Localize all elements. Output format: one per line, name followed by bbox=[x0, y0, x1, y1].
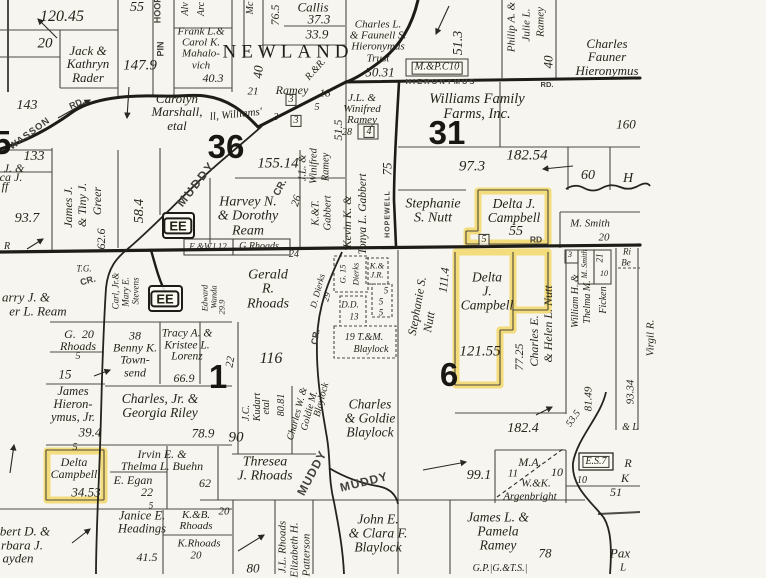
parcel-label: T.G. bbox=[76, 264, 91, 273]
parcel-label: Ramey bbox=[535, 7, 546, 37]
parcel-label: D.D. bbox=[341, 300, 359, 309]
parcel-label: Be bbox=[621, 258, 631, 267]
parcel-label: ayden bbox=[2, 551, 33, 564]
parcel-label: RD. bbox=[68, 97, 86, 112]
owner-buehn: Irvin E. & Thelma L. Buehn bbox=[121, 448, 203, 472]
parcel-label: 182.4 bbox=[507, 422, 539, 436]
parcel-label: 133 bbox=[24, 150, 45, 164]
parcel-label: Mc bbox=[246, 2, 256, 15]
creek-muddy: MUDDY bbox=[339, 470, 390, 494]
parcel-label: G.P.|G.&T.S.| bbox=[473, 564, 528, 574]
parcel-label: M.&P.C10 bbox=[412, 62, 463, 75]
parcel-label: 22 bbox=[141, 486, 153, 498]
owner-john-blaylock: John E. & Clara F. Blaylock bbox=[349, 512, 408, 553]
parcel-label: 53.5 bbox=[565, 409, 583, 429]
parcel-label: 77.25 bbox=[513, 344, 525, 371]
parcel-label: er L. Ream bbox=[9, 304, 66, 317]
owner-james-ramey: James L. & Pamela Ramey bbox=[467, 510, 529, 551]
parcel-label: & Tiny J. bbox=[76, 183, 88, 227]
parcel-label: 93.34 bbox=[625, 380, 636, 405]
parcel-label: 5 bbox=[379, 297, 384, 306]
owner-riley: Charles, Jr. & Georgia Riley bbox=[122, 392, 199, 420]
parcel-label: 29 bbox=[321, 291, 332, 302]
parcel-label: 3 bbox=[274, 113, 279, 123]
parcel-label: 5 bbox=[315, 103, 320, 113]
owner-fauner-hieronymus: Charles Fauner Hieronymus bbox=[575, 37, 638, 77]
parcel-label: Stevens bbox=[131, 278, 140, 305]
parcel-label: 76.5 bbox=[269, 5, 281, 26]
parcel-label: K.& J.R. bbox=[370, 261, 384, 278]
parcel-label: 29.9 bbox=[218, 300, 227, 315]
parcel-label: 143 bbox=[17, 99, 38, 113]
parcel-label: K.&B. Rhoads bbox=[180, 510, 213, 532]
parcel-label: M.A. bbox=[518, 456, 541, 468]
parcel-label: 18 bbox=[320, 88, 331, 99]
parcel-label: 90 bbox=[229, 430, 244, 445]
parcel-label: 21 bbox=[595, 254, 604, 263]
parcel-label: L bbox=[620, 562, 626, 573]
parcel-label: Nutt bbox=[421, 311, 437, 333]
parcel-label: M. Smith bbox=[581, 250, 589, 279]
road-hopewell: HOPEWELL bbox=[384, 190, 391, 238]
section-31: 31 bbox=[429, 116, 466, 150]
parcel-label: 37.3 bbox=[308, 12, 331, 25]
parcel-label: 13 bbox=[350, 312, 359, 321]
acreage-121-55: 121.55 bbox=[459, 344, 500, 359]
parcel-label: 3 bbox=[291, 115, 302, 127]
parcel-label: 26 bbox=[290, 194, 304, 208]
parcel-label: 3 bbox=[286, 94, 297, 106]
parcel-label: 55 bbox=[130, 1, 144, 15]
owner-patterson: Elizabeth H. bbox=[289, 523, 300, 578]
parcel-label: 40 bbox=[251, 65, 265, 79]
parcel-label: 5 bbox=[384, 286, 389, 295]
owner-philip-ramey: Philip A. & bbox=[506, 2, 517, 52]
parcel-label: Dierks bbox=[352, 263, 361, 286]
parcel-label: 5 bbox=[479, 234, 490, 246]
parcel-label: 155.14 bbox=[257, 156, 298, 171]
parcel-label: HOOP bbox=[153, 0, 162, 23]
parcel-label: ll, Williams' bbox=[209, 107, 262, 124]
parcel-label: 5 bbox=[76, 352, 81, 362]
owner-charles-goldie-blaylock: Charles & Goldie Blaylock bbox=[345, 397, 396, 438]
parcel-label: Blaylock bbox=[354, 345, 389, 355]
parcel-label: 78 bbox=[539, 546, 552, 559]
town-newland: NEWLAND bbox=[222, 42, 353, 61]
parcel-label: 97.3 bbox=[459, 159, 485, 174]
parcel-label: Ri bbox=[623, 247, 631, 256]
parcel-label: 93.7 bbox=[15, 212, 40, 226]
owner-greer: James J. bbox=[62, 186, 74, 227]
owner-kevin-gabbert: Kevin K. & bbox=[343, 196, 355, 248]
parcel-label: CR. bbox=[79, 275, 96, 288]
parcel-label: 20 bbox=[599, 232, 610, 243]
parcel-label: 116 bbox=[260, 351, 283, 367]
creek-muddy: MUDDY bbox=[175, 159, 218, 209]
parcel-label: 62.6 bbox=[95, 229, 107, 250]
owner-ream: Harvey N. & Dorothy Ream bbox=[218, 196, 279, 239]
parcel-label: Tonya L. Gabbert bbox=[358, 173, 370, 254]
owner-marshall: Carolyn Marshall, etal bbox=[152, 92, 203, 132]
parcel-label: 120.45 bbox=[40, 9, 84, 25]
parcel-label: 99.1 bbox=[467, 469, 492, 483]
owner-headings: Janice E. Headings bbox=[118, 509, 166, 535]
parcel-label: 62 bbox=[199, 477, 211, 489]
parcel-label: Argenbright bbox=[503, 491, 556, 502]
parcel-label: 60 bbox=[581, 169, 595, 183]
parcel-label: 33.9 bbox=[306, 27, 329, 40]
parcel-label: 20 bbox=[219, 506, 230, 517]
parcel-label: 24 bbox=[289, 250, 299, 260]
parcel-label: 5 bbox=[73, 443, 78, 453]
parcel-label: Julie L. bbox=[521, 9, 532, 42]
parcel-label: ff bbox=[2, 180, 9, 192]
parcel-label: 58.4 bbox=[133, 199, 147, 224]
road-hieronymus: HIERONYMUS bbox=[406, 78, 477, 86]
parcel-label: 80.81 bbox=[277, 394, 287, 417]
parcel-label: 3 bbox=[568, 251, 572, 259]
parcel-label: & L bbox=[622, 423, 638, 433]
parcel-label: Alv bbox=[181, 2, 191, 15]
parcel-label: RD. bbox=[541, 81, 554, 89]
parcel-label: 20 bbox=[38, 36, 53, 51]
parcel-label: G. 15 bbox=[339, 265, 348, 284]
parcel-label: Arc bbox=[197, 2, 207, 16]
parcel-label: 28 bbox=[342, 128, 352, 138]
owner-mahalovich: Frank L.& Carol K. Mahalo- vich bbox=[177, 27, 224, 72]
parcel-label: 15 bbox=[59, 367, 72, 380]
owner-ficken: William H. & bbox=[571, 274, 581, 328]
parcel-label: 80 bbox=[247, 561, 260, 574]
parcel-label: 147.9 bbox=[123, 58, 157, 73]
owner-delta-campbell-121: Delta J. Campbell bbox=[461, 270, 514, 311]
owner-hayden: bert D. & bbox=[0, 524, 50, 537]
owner-gerald-rhoads: Gerald R. Rhoads bbox=[247, 269, 289, 312]
route-ee-marker: EE bbox=[150, 290, 179, 307]
parcel-label: G.Rhoads bbox=[239, 242, 279, 252]
parcel-label: 11 bbox=[508, 468, 518, 479]
parcel-label: Patterson bbox=[301, 534, 312, 577]
parcel-label: 111.4 bbox=[437, 267, 452, 293]
section-5: 5 bbox=[0, 126, 11, 160]
parcel-label: 75 bbox=[380, 163, 393, 176]
parcel-label: 21 bbox=[248, 86, 259, 97]
parcel-label: 51.3 bbox=[452, 31, 466, 56]
parcel-label: Ficken bbox=[599, 286, 609, 313]
parcel-label: E.S.7 bbox=[582, 456, 609, 468]
owner-hieronymus-jr: James Hieron- ymus, Jr. bbox=[51, 385, 95, 423]
parcel-label: 50.31 bbox=[365, 65, 394, 78]
parcel-label: 10 bbox=[551, 466, 563, 478]
parcel-label: 10 bbox=[600, 270, 608, 278]
parcel-label: Ramey bbox=[322, 153, 333, 182]
acreage-34-53: 34.53 bbox=[71, 485, 100, 498]
owner-ream-larry: arry J. & bbox=[2, 290, 50, 303]
parcel-label: R bbox=[624, 457, 631, 469]
parcel-label: 5 bbox=[379, 308, 384, 317]
route-ee-marker: EE bbox=[163, 217, 192, 234]
parcel-label: etal bbox=[262, 400, 272, 415]
parcel-label: CR. bbox=[272, 178, 289, 198]
owner-delta-campbell-55: Delta J. Campbell bbox=[488, 197, 541, 225]
owner-delta-campbell-34: Delta Campbell bbox=[51, 456, 98, 480]
parcel-label: K bbox=[621, 472, 629, 484]
owner-stephanie-nutt: Stephanie S. Nutt bbox=[405, 198, 460, 227]
parcel-label: Greer bbox=[91, 187, 103, 215]
owner-rader: Jack & Kathryn Rader bbox=[67, 44, 110, 84]
parcel-label: 4 bbox=[364, 126, 375, 138]
parcel-label: K.&T. bbox=[312, 200, 323, 225]
owner-townsend: 38 Benny K. Town- send bbox=[113, 330, 157, 379]
owner-thresea-rhoads: Thresea J. Rhoads bbox=[237, 456, 292, 485]
parcel-label: 40.3 bbox=[203, 72, 224, 84]
owner-stevens: Carl, Jr.& bbox=[111, 273, 120, 310]
section-1: 1 bbox=[209, 360, 227, 394]
parcel-label: Pax bbox=[610, 546, 630, 559]
owner-charles-nutt: Charles E. bbox=[528, 315, 540, 366]
parcel-label: 182.54 bbox=[506, 148, 547, 163]
parcel-label: Thelma M. bbox=[583, 280, 593, 323]
parcel-label: K.Rhoads bbox=[177, 538, 220, 549]
parcel-label: J.L. Rhoads bbox=[277, 521, 288, 573]
owner-virgil: Virgil R. bbox=[645, 320, 656, 357]
parcel-label: 39.4 bbox=[79, 425, 102, 438]
parcel-label: E.&W.l.12 bbox=[189, 242, 226, 251]
parcel-label: RD bbox=[530, 236, 542, 245]
parcel-label: Winifred bbox=[310, 148, 321, 184]
section-36: 36 bbox=[208, 130, 245, 164]
parcel-label: Blaylock bbox=[313, 382, 332, 418]
owner-jl-ramey: J.L. & Winifred Ramey bbox=[343, 93, 380, 127]
road-wasson: WASSON bbox=[8, 116, 53, 152]
parcel-label: 81.49 bbox=[583, 387, 594, 412]
map-labels: 55120.4520Jack & Kathryn Rader147.9143WA… bbox=[0, 0, 766, 574]
acreage-55: 55 bbox=[509, 225, 523, 239]
owner-kudart: J.C. bbox=[242, 405, 252, 421]
parcel-label: 51 bbox=[610, 486, 622, 498]
creek-muddy: MUDDY bbox=[295, 448, 329, 497]
owner-lorenz: Tracy A. & Kristee L. Lorenz bbox=[162, 328, 213, 363]
owner-hieronymus-trust: Charles L. & Faunell S. Hieronymus Trust bbox=[350, 20, 407, 65]
parcel-label: Gabbert bbox=[324, 196, 335, 231]
parcel-label: 20 bbox=[191, 550, 202, 561]
parcel-label: 160 bbox=[616, 117, 636, 130]
parcel-label: R bbox=[4, 242, 10, 252]
owner-argenbright: W.&K. bbox=[521, 478, 551, 489]
parcel-label: & Helen L. Nutt bbox=[542, 285, 554, 362]
parcel-label: Mary E. bbox=[121, 277, 130, 307]
parcel-label: 19 T.&M. bbox=[345, 333, 383, 343]
parcel-label: PIN bbox=[156, 41, 165, 56]
parcel-label: CR. bbox=[310, 329, 322, 346]
parcel-label: 40 bbox=[541, 56, 554, 69]
parcel-label: H bbox=[623, 172, 633, 186]
plat-map: 55120.4520Jack & Kathryn Rader147.9143WA… bbox=[0, 0, 766, 574]
parcel-label: 41.5 bbox=[137, 551, 158, 563]
parcel-label: 66.9 bbox=[174, 372, 195, 384]
parcel-label: 10 bbox=[577, 476, 587, 486]
parcel-label: M. Smith bbox=[570, 218, 610, 229]
section-6: 6 bbox=[440, 358, 458, 392]
parcel-label: 78.9 bbox=[192, 426, 215, 439]
